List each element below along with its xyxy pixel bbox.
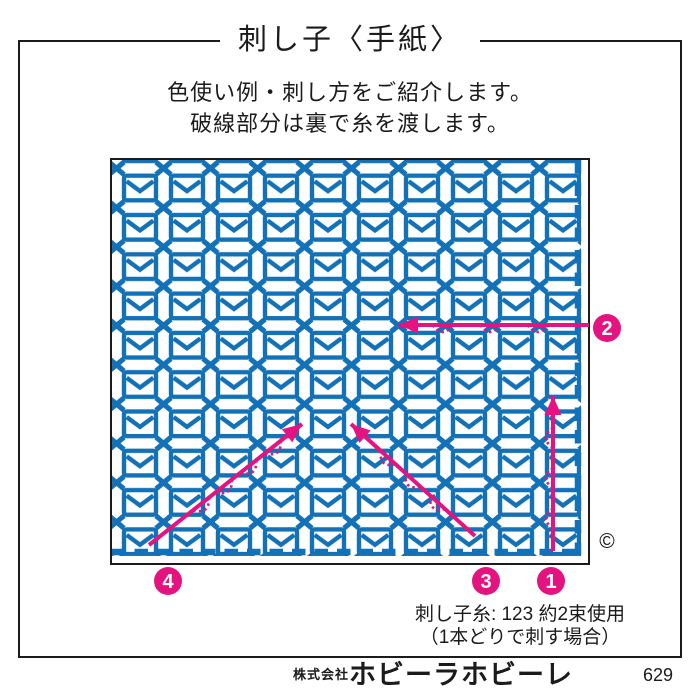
stitch-pattern-canvas — [112, 160, 588, 563]
stitch-pattern-panel — [110, 158, 590, 565]
pattern-fill — [112, 160, 581, 556]
footer-logo: 株式会社 ホビーラホビーレ — [293, 660, 573, 690]
thread-notes: 刺し子糸: 123 約2束使用 （1本どりで刺す場合） — [385, 603, 655, 649]
page-number: 629 — [643, 665, 673, 686]
page-title: 刺し子〈手紙〉 — [220, 22, 480, 58]
thread-note-line-1: 刺し子糸: 123 約2束使用 — [385, 603, 655, 626]
company-prefix: 株式会社 — [293, 664, 349, 683]
subtitle-line-2: 破線部分は裏で糸を渡します。 — [0, 106, 700, 138]
copyright-mark: © — [594, 530, 620, 554]
thread-note-line-2: （1本どりで刺す場合） — [385, 626, 655, 649]
subtitle-line-1: 色使い例・刺し方をご紹介します。 — [0, 75, 700, 107]
brand-name: ホビーラホビーレ — [349, 660, 573, 690]
